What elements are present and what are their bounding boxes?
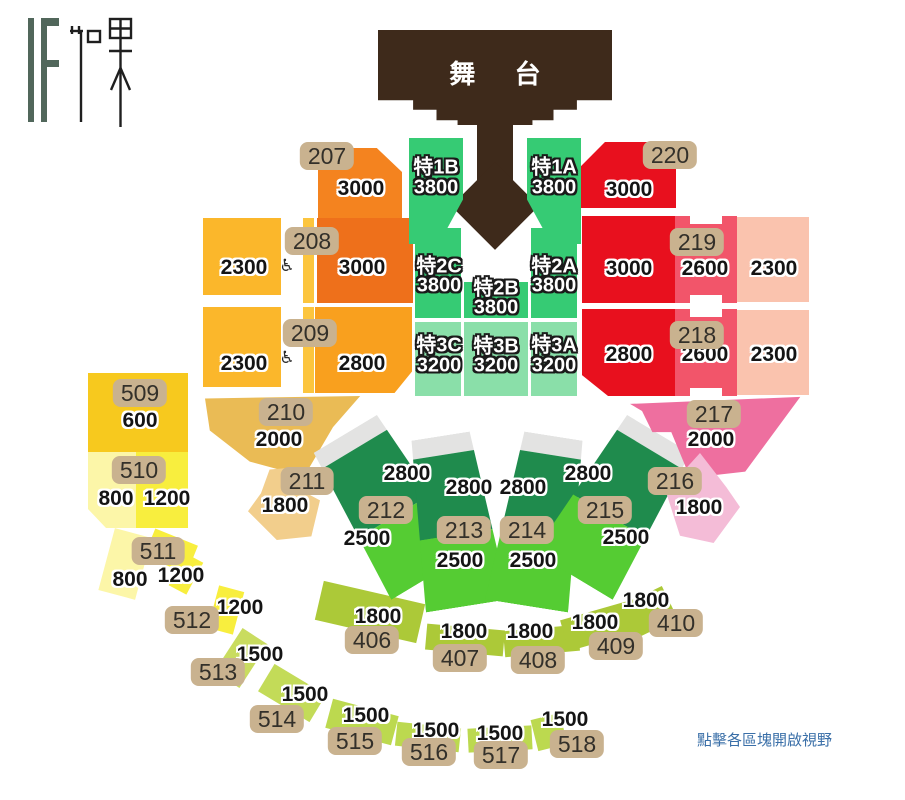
price-510-right: 1200 (144, 487, 191, 511)
price-207: 3000 (338, 177, 385, 201)
wheelchair-icon: ♿ (279, 256, 294, 276)
price-219-inner: 3000 (606, 257, 653, 281)
price-515: 1500 (343, 704, 390, 728)
price-408: 1800 (507, 620, 554, 644)
price-208-side: 2300 (221, 256, 268, 280)
price-214-upper: 2800 (500, 476, 547, 500)
price-210: 2000 (256, 428, 303, 452)
label-te3a-name: 特3A (531, 329, 577, 358)
badge-516[interactable]: 516 (402, 738, 456, 766)
price-214-lower: 2500 (510, 549, 557, 573)
label-te3b-price: 3200 (474, 355, 519, 378)
logo-if-letters (28, 18, 59, 122)
price-217: 2000 (688, 428, 735, 452)
badge-210[interactable]: 210 (259, 398, 313, 426)
price-212-lower: 2500 (344, 527, 391, 551)
price-213-upper: 2800 (446, 476, 493, 500)
price-511-right: 1200 (158, 564, 205, 588)
badge-212[interactable]: 212 (359, 496, 413, 524)
badge-209[interactable]: 209 (283, 319, 337, 347)
badge-408[interactable]: 408 (511, 646, 565, 674)
badge-512[interactable]: 512 (165, 606, 219, 634)
price-511-left: 800 (112, 568, 147, 592)
price-514: 1500 (282, 683, 329, 707)
badge-215[interactable]: 215 (578, 496, 632, 524)
label-te2b-price: 3800 (474, 297, 519, 320)
badge-218[interactable]: 218 (670, 321, 724, 349)
label-te2c-price: 3800 (417, 275, 462, 298)
price-218-inner: 2800 (606, 343, 653, 367)
badge-513[interactable]: 513 (191, 658, 245, 686)
badge-213[interactable]: 213 (437, 516, 491, 544)
badge-208[interactable]: 208 (285, 227, 339, 255)
price-219-outer: 2300 (751, 257, 798, 281)
stage-label: 舞 台 (378, 54, 612, 91)
badge-217[interactable]: 217 (687, 400, 741, 428)
badge-515[interactable]: 515 (328, 727, 382, 755)
label-te3c-name: 特3C (416, 329, 462, 358)
badge-207[interactable]: 207 (300, 142, 354, 170)
badge-406[interactable]: 406 (345, 626, 399, 654)
notch (690, 295, 722, 303)
notch (690, 309, 722, 317)
price-209-main: 2800 (339, 352, 386, 376)
badge-407[interactable]: 407 (433, 644, 487, 672)
price-512: 1200 (217, 596, 264, 620)
price-219-mid: 2600 (682, 257, 729, 281)
price-213-lower: 2500 (437, 549, 484, 573)
badge-216[interactable]: 216 (648, 467, 702, 495)
badge-409[interactable]: 409 (589, 632, 643, 660)
badge-509[interactable]: 509 (113, 379, 167, 407)
notch (690, 388, 722, 396)
price-509: 600 (122, 409, 157, 433)
badge-214[interactable]: 214 (500, 516, 554, 544)
wheelchair-icon: ♿ (279, 348, 294, 368)
badge-514[interactable]: 514 (250, 705, 304, 733)
badge-517[interactable]: 517 (474, 741, 528, 769)
label-te1a-name: 特1A (531, 151, 577, 180)
price-216: 1800 (676, 496, 723, 520)
price-518: 1500 (542, 708, 589, 732)
badge-410[interactable]: 410 (649, 609, 703, 637)
badge-510[interactable]: 510 (112, 456, 166, 484)
badge-518[interactable]: 518 (550, 730, 604, 758)
price-208-main: 3000 (339, 256, 386, 280)
badge-211[interactable]: 211 (281, 467, 334, 495)
label-te2a-price: 3800 (532, 275, 577, 298)
price-209-side: 2300 (221, 352, 268, 376)
caption-hint: 點擊各區塊開啟視野 (697, 729, 832, 750)
price-215-lower: 2500 (603, 526, 650, 550)
stage: 舞 台 (378, 30, 612, 125)
brand-logo (25, 8, 140, 130)
label-te3c-price: 3200 (417, 355, 462, 378)
badge-220[interactable]: 220 (643, 141, 697, 169)
badge-219[interactable]: 219 (670, 228, 724, 256)
price-215-upper: 2800 (565, 462, 612, 486)
price-212-upper: 2800 (384, 462, 431, 486)
label-te3a-price: 3200 (532, 355, 577, 378)
price-407: 1800 (441, 620, 488, 644)
price-218-outer: 2300 (751, 343, 798, 367)
seat-map: 舞 台 (0, 0, 905, 800)
label-te1b-price: 3800 (414, 177, 459, 200)
price-211: 1800 (262, 494, 309, 518)
notch (690, 216, 722, 224)
logo-ruguo-characters (70, 19, 132, 127)
label-te1b-name: 特1B (413, 151, 459, 180)
stage-runway-tip (451, 162, 539, 250)
price-220: 3000 (606, 178, 653, 202)
badge-511[interactable]: 511 (132, 537, 185, 565)
price-510-left: 800 (98, 487, 133, 511)
label-te1a-price: 3800 (532, 177, 577, 200)
